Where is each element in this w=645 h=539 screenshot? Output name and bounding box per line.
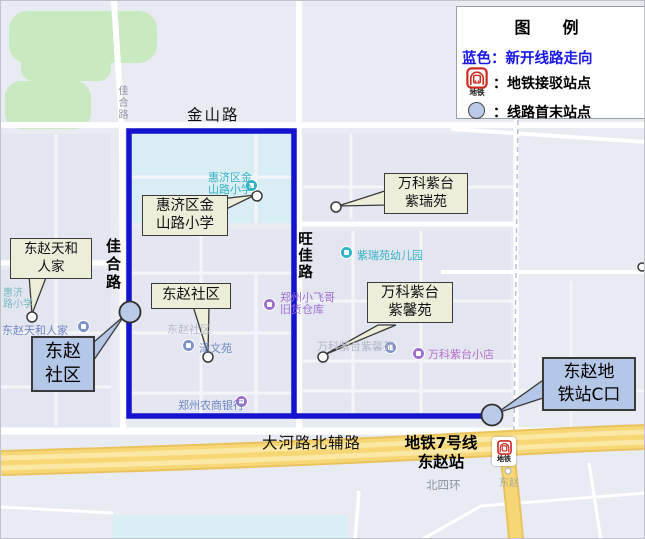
poi-bank: 郑州农商银行 [178, 397, 244, 413]
callout-school: 惠济区金 山路小学 [142, 195, 228, 236]
terminal-metro-circle [482, 405, 503, 426]
map-metro-station-icon: 地铁 [492, 437, 516, 466]
legend-metro-item: ：地铁接驳站点 [493, 73, 591, 93]
road-label-jiahe: 佳合路 [103, 238, 124, 292]
terminal-box-metro-exit: 东赵地 铁站C口 [542, 357, 636, 411]
metro-logo-icon [466, 67, 488, 89]
store-icon [412, 347, 425, 360]
poi-feige: 郑州小飞哥 旧货仓库 [280, 292, 335, 316]
callout-shequ: 东赵社区 [151, 283, 231, 309]
legend-metro-icon-text: 地铁 [470, 89, 485, 97]
legend-panel: 图 例 蓝色：新开线路走向 地铁 ：地铁接驳站点 ：线路首末站点 [456, 6, 645, 119]
road-label-dahe-north: 大河路北辅路 [262, 431, 361, 453]
callout-zirui: 万科紫台 紫瑞苑 [384, 173, 468, 214]
poi-school-map: 惠济区金 山路小学 [208, 172, 252, 196]
zirui-stop-marker [331, 202, 341, 212]
warehouse-icon [263, 298, 276, 311]
poi-kindergarten: 紫瑞苑幼儿园 [357, 247, 423, 263]
road-label-jinshan: 金山路 [187, 103, 240, 125]
poi-zixin-map: 万科紫台紫馨苑 [317, 338, 394, 354]
building-icon [77, 320, 90, 333]
legend-metro-icon: 地铁 [466, 67, 488, 97]
callout-tianhe: 东赵天和 人家 [10, 238, 92, 279]
poi-school-left: 惠济 路小学 [3, 288, 33, 310]
home-icon [182, 339, 195, 352]
terminal-box-shequ: 东赵 社区 [31, 336, 95, 392]
legend-route-label: 蓝色：新开线路走向 [462, 47, 593, 68]
school-stop-marker [252, 191, 262, 201]
road-label-jiahe-small: 佳合路 [114, 85, 129, 121]
map-metro-icon-text: 地铁 [497, 455, 511, 463]
metro-logo-icon [497, 440, 512, 455]
road-label-beisihuan: 北四环 [426, 477, 461, 493]
poi-store: 万科紫台小店 [428, 346, 494, 362]
terminal-shequ-circle [120, 302, 141, 323]
poi-zewenyuan: 泽文苑 [199, 340, 232, 356]
road-label-wangjia: 旺佳路 [294, 231, 315, 281]
legend-terminal-item: ：线路首末站点 [493, 102, 591, 122]
legend-terminal-icon [468, 102, 485, 119]
road-label-dongzhao: 东赵 [499, 474, 519, 489]
legend-title: 图 例 [457, 14, 644, 38]
metro-line7-station-label: 地铁7号线 东赵站 [393, 434, 489, 472]
tianhe-stop-marker [27, 312, 37, 322]
poi-shequ-faint: 东赵社区 [167, 321, 211, 337]
edge-marker [638, 263, 645, 271]
callout-zixin: 万科紫台 紫馨苑 [367, 282, 453, 323]
water-block [113, 515, 348, 539]
kindergarten-icon [340, 246, 353, 259]
map-screenshot: 图 例 蓝色：新开线路走向 地铁 ：地铁接驳站点 ：线路首末站点 金山路 佳合路… [0, 0, 645, 539]
